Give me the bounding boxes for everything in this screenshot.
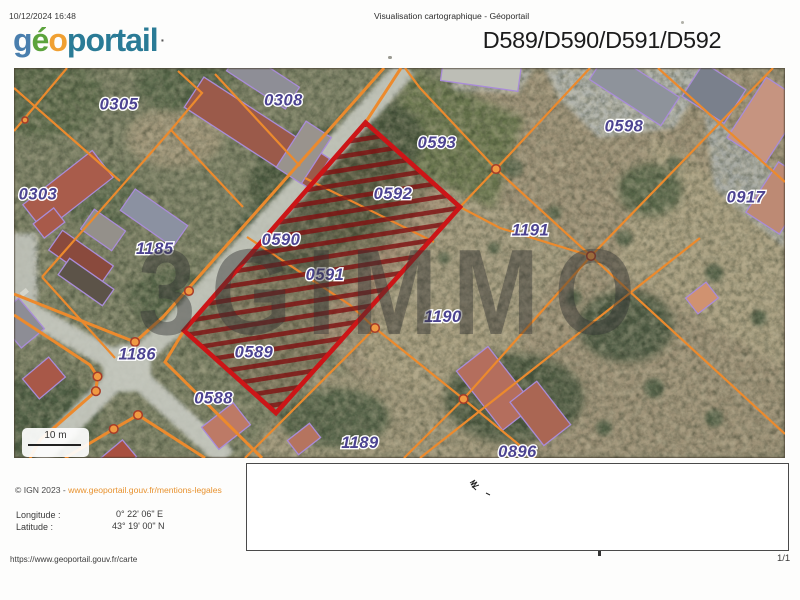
svg-text:0598: 0598: [605, 118, 644, 136]
svg-text:1189: 1189: [341, 434, 379, 452]
svg-text:0588: 0588: [194, 390, 233, 408]
svg-text:0303: 0303: [19, 186, 58, 204]
svg-text:0896: 0896: [498, 443, 537, 458]
svg-text:0305: 0305: [100, 96, 139, 114]
svg-text:0308: 0308: [264, 92, 303, 110]
svg-text:0917: 0917: [727, 189, 766, 207]
svg-text:0592: 0592: [374, 185, 413, 203]
svg-text:0593: 0593: [418, 134, 457, 152]
